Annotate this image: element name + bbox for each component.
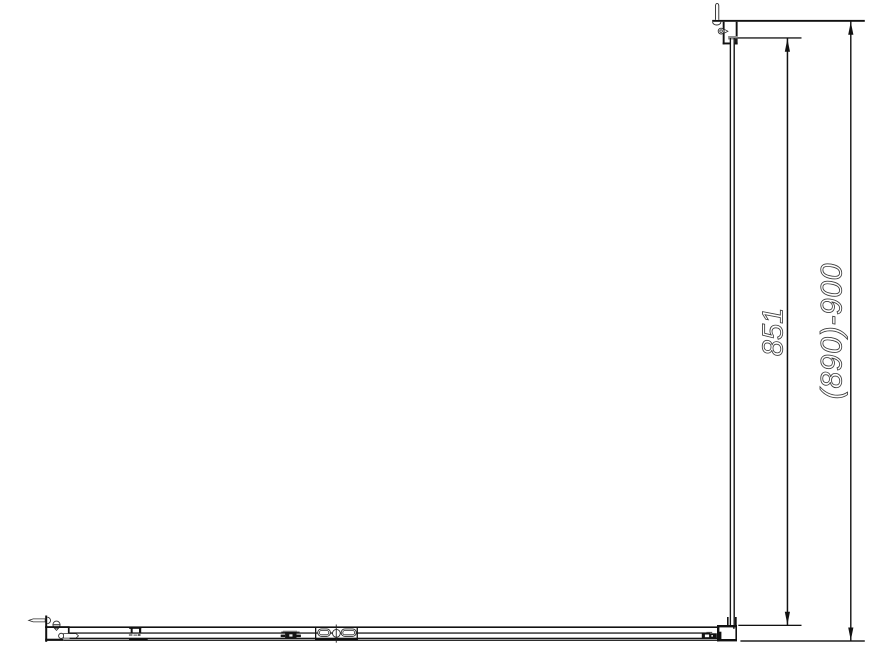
svg-text:(890)-900: (890)-900 <box>816 263 849 399</box>
svg-text:851: 851 <box>758 308 790 356</box>
